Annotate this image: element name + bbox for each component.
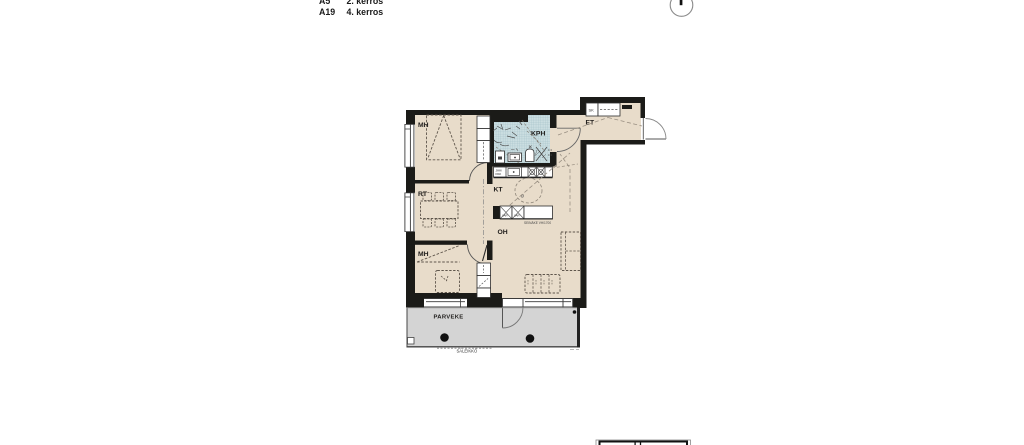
svg-text:2. kerros: 2. kerros bbox=[347, 0, 384, 6]
svg-text:KT: KT bbox=[494, 187, 504, 194]
svg-text:PAK: PAK bbox=[496, 172, 502, 176]
svg-text:OH: OH bbox=[498, 229, 508, 236]
svg-text:VAR: VAR bbox=[502, 214, 508, 218]
svg-text:VAR: VAR bbox=[514, 214, 520, 218]
svg-text:SÄLEIKKÖ: SÄLEIKKÖ bbox=[457, 349, 478, 354]
svg-text:SEINÄKE VH/1700: SEINÄKE VH/1700 bbox=[524, 221, 551, 225]
svg-text:4. kerros: 4. kerros bbox=[347, 7, 384, 17]
svg-text:A19: A19 bbox=[319, 7, 335, 17]
svg-text:RT: RT bbox=[418, 191, 428, 198]
svg-text:SK: SK bbox=[589, 108, 595, 113]
svg-text:KPH: KPH bbox=[531, 131, 545, 138]
svg-text:MH: MH bbox=[418, 122, 429, 129]
svg-text:PARVEKE: PARVEKE bbox=[434, 315, 464, 321]
svg-text:MH: MH bbox=[418, 251, 429, 258]
svg-text:ET: ET bbox=[586, 120, 596, 127]
svg-text:A5: A5 bbox=[319, 0, 330, 6]
